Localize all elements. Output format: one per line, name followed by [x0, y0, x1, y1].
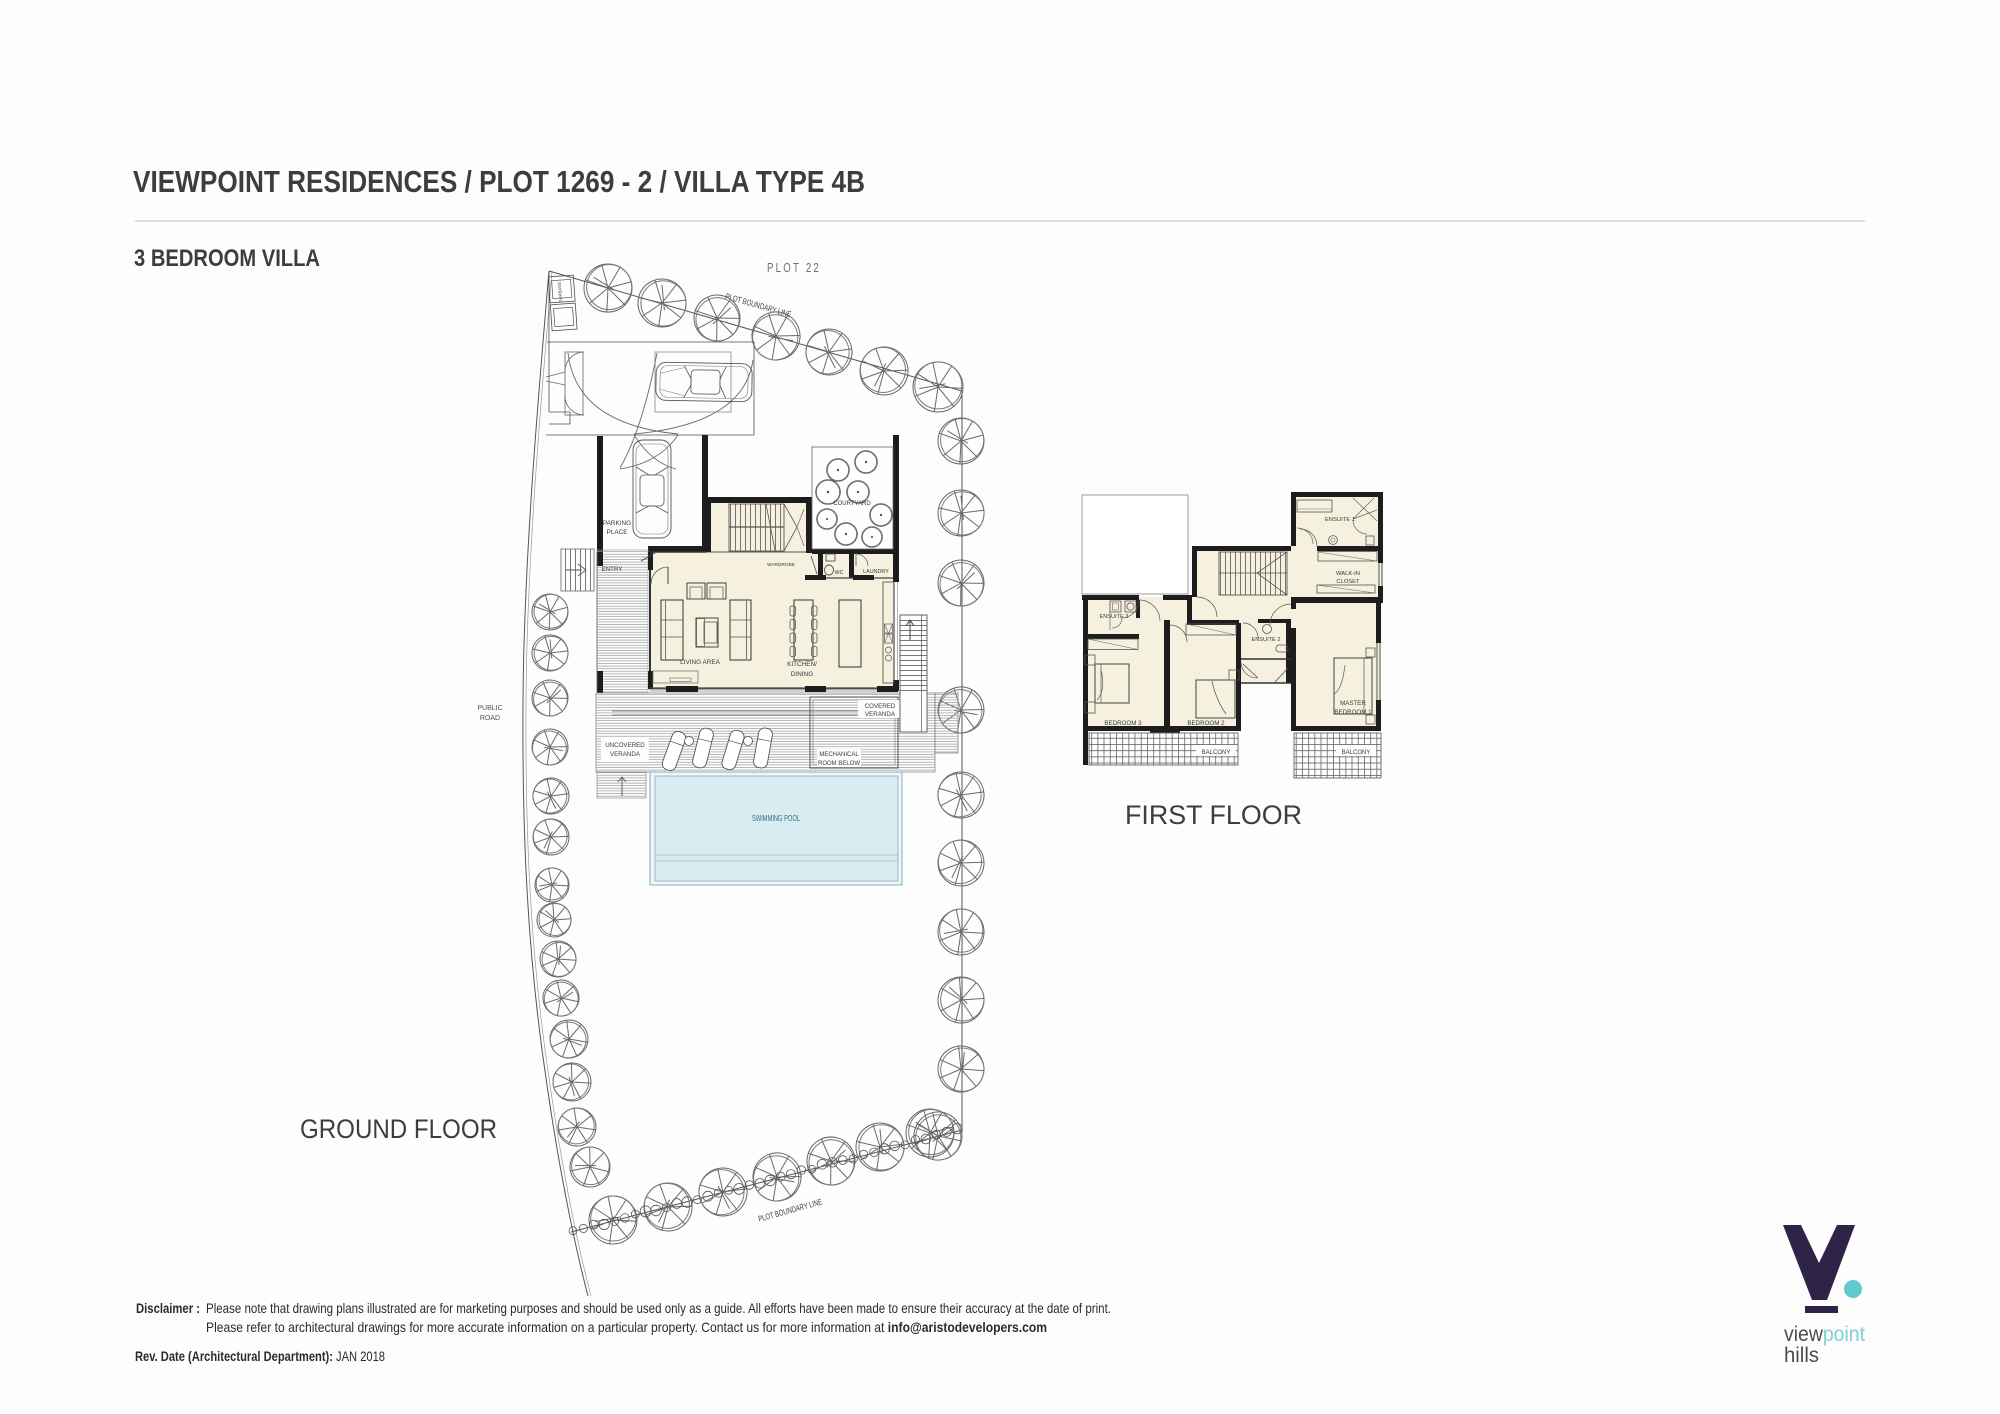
svg-text:WALK-IN: WALK-IN — [1336, 571, 1360, 577]
svg-text:viewpoint: viewpoint — [1784, 1323, 1865, 1346]
svg-text:KITCHEN/: KITCHEN/ — [787, 661, 817, 668]
svg-text:CLOSET: CLOSET — [1336, 579, 1360, 585]
svg-text:PARKING: PARKING — [603, 520, 631, 527]
svg-text:BALCONY: BALCONY — [1202, 750, 1231, 756]
svg-text:PLOT 22: PLOT 22 — [767, 260, 821, 275]
svg-text:COVERED: COVERED — [865, 703, 896, 710]
svg-text:BEDROOM 1: BEDROOM 1 — [1334, 709, 1372, 716]
svg-text:COURTYARD: COURTYARD — [833, 501, 871, 507]
svg-text:VERANDA: VERANDA — [865, 711, 896, 718]
svg-text:hills: hills — [1784, 1344, 1819, 1367]
svg-text:VIEWPOINT RESIDENCES / PLOT 12: VIEWPOINT RESIDENCES / PLOT 1269 - 2 / V… — [133, 164, 865, 199]
svg-text:LAUNDRY: LAUNDRY — [863, 569, 889, 575]
svg-text:PUBLIC: PUBLIC — [477, 705, 502, 712]
svg-text:ROAD: ROAD — [480, 715, 500, 722]
svg-text:Please refer to architectural: Please refer to architectural drawings f… — [206, 1319, 1047, 1335]
svg-text:DINING: DINING — [791, 671, 813, 678]
svg-text:BALCONY: BALCONY — [1342, 750, 1371, 756]
svg-text:Please note that drawing plans: Please note that drawing plans illustrat… — [206, 1300, 1111, 1316]
svg-text:GROUND FLOOR: GROUND FLOOR — [300, 1114, 497, 1144]
svg-text:ENTRY: ENTRY — [602, 566, 623, 573]
svg-text:WARDROBE: WARDROBE — [767, 562, 795, 568]
svg-text:MASTER: MASTER — [1340, 700, 1366, 707]
svg-text:BEDROOM 2: BEDROOM 2 — [1187, 720, 1225, 727]
svg-text:BEDROOM 3: BEDROOM 3 — [1104, 720, 1142, 727]
svg-text:ENSUITE 1: ENSUITE 1 — [1325, 517, 1355, 523]
svg-text:ENSUITE 2: ENSUITE 2 — [1252, 637, 1281, 643]
svg-text:LIVING AREA: LIVING AREA — [680, 659, 721, 666]
svg-text:SWIMMING POOL: SWIMMING POOL — [752, 814, 800, 823]
svg-text:UNCOVERED: UNCOVERED — [605, 742, 645, 749]
svg-text:Rev. Date (Architectural Depar: Rev. Date (Architectural Department): JA… — [135, 1348, 385, 1364]
svg-text:VERANDA: VERANDA — [610, 751, 641, 758]
svg-text:MECHANICAL: MECHANICAL — [819, 752, 859, 758]
svg-text:PLACE: PLACE — [607, 529, 628, 536]
svg-text:WC: WC — [835, 570, 844, 576]
svg-text:3 BEDROOM VILLA: 3 BEDROOM VILLA — [134, 245, 320, 272]
svg-text:ROOM BELOW: ROOM BELOW — [818, 761, 860, 767]
svg-text:Disclaimer :: Disclaimer : — [136, 1300, 200, 1316]
svg-text:ENSUITE 3: ENSUITE 3 — [1100, 614, 1129, 620]
svg-text:FIRST FLOOR: FIRST FLOOR — [1125, 800, 1302, 830]
